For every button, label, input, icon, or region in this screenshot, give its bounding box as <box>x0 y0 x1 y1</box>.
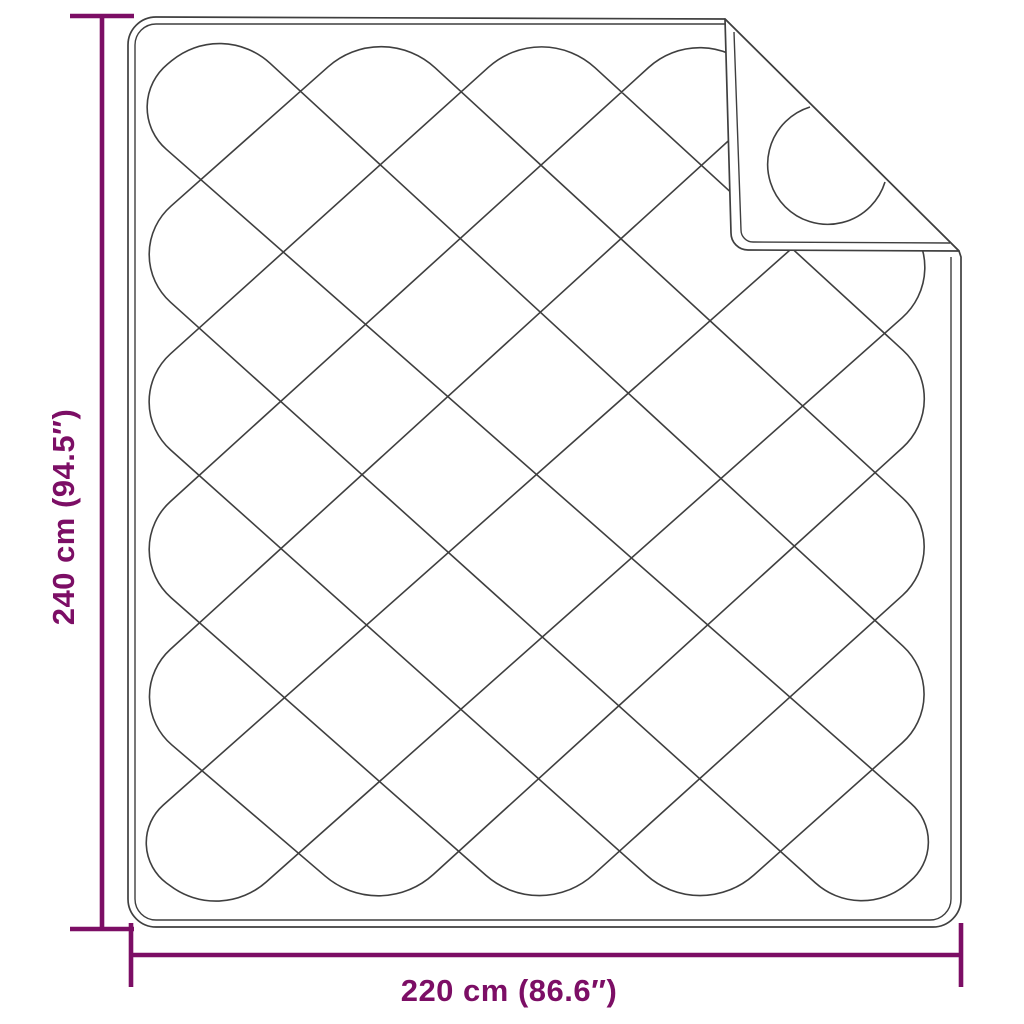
height-dimension-label: 240 cm (94.5″) <box>47 367 81 667</box>
width-dimension-label: 220 cm (86.6″) <box>359 974 659 1008</box>
folded-corner-flap <box>725 19 959 251</box>
product-dimension-diagram: 240 cm (94.5″) 220 cm (86.6″) <box>0 0 1024 1024</box>
blanket-illustration <box>0 0 1024 1024</box>
